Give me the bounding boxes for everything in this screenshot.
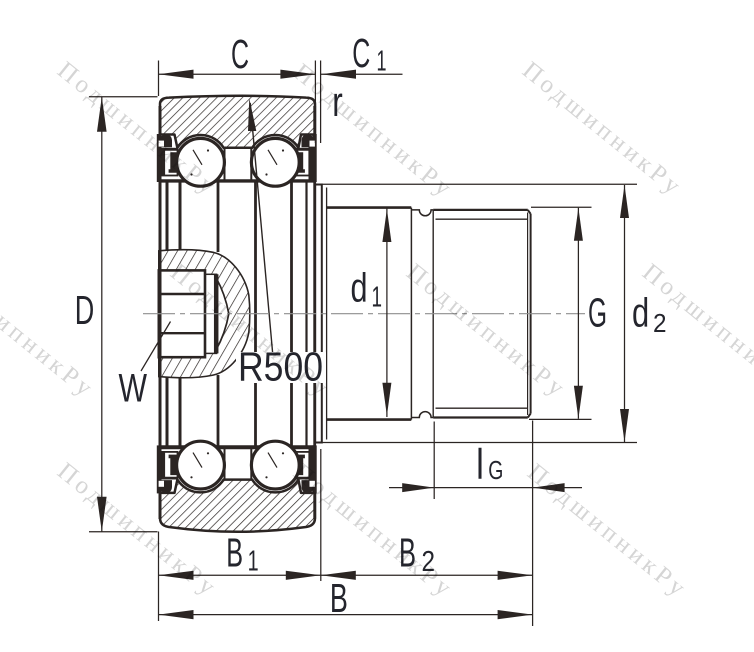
svg-text:C: C [231, 31, 249, 77]
svg-text:1: 1 [377, 46, 387, 78]
svg-text:C: C [352, 30, 370, 76]
svg-text:d: d [351, 265, 368, 311]
svg-text:d: d [632, 290, 649, 336]
svg-text:1: 1 [372, 282, 383, 314]
svg-text:1: 1 [248, 546, 259, 578]
svg-text:l: l [477, 441, 483, 487]
svg-text:B: B [226, 529, 243, 575]
svg-text:2: 2 [653, 308, 667, 338]
svg-text:G: G [488, 455, 503, 485]
svg-text:W: W [119, 367, 148, 411]
svg-text:D: D [75, 287, 95, 333]
svg-text:G: G [588, 290, 607, 336]
svg-text:B: B [330, 575, 348, 621]
